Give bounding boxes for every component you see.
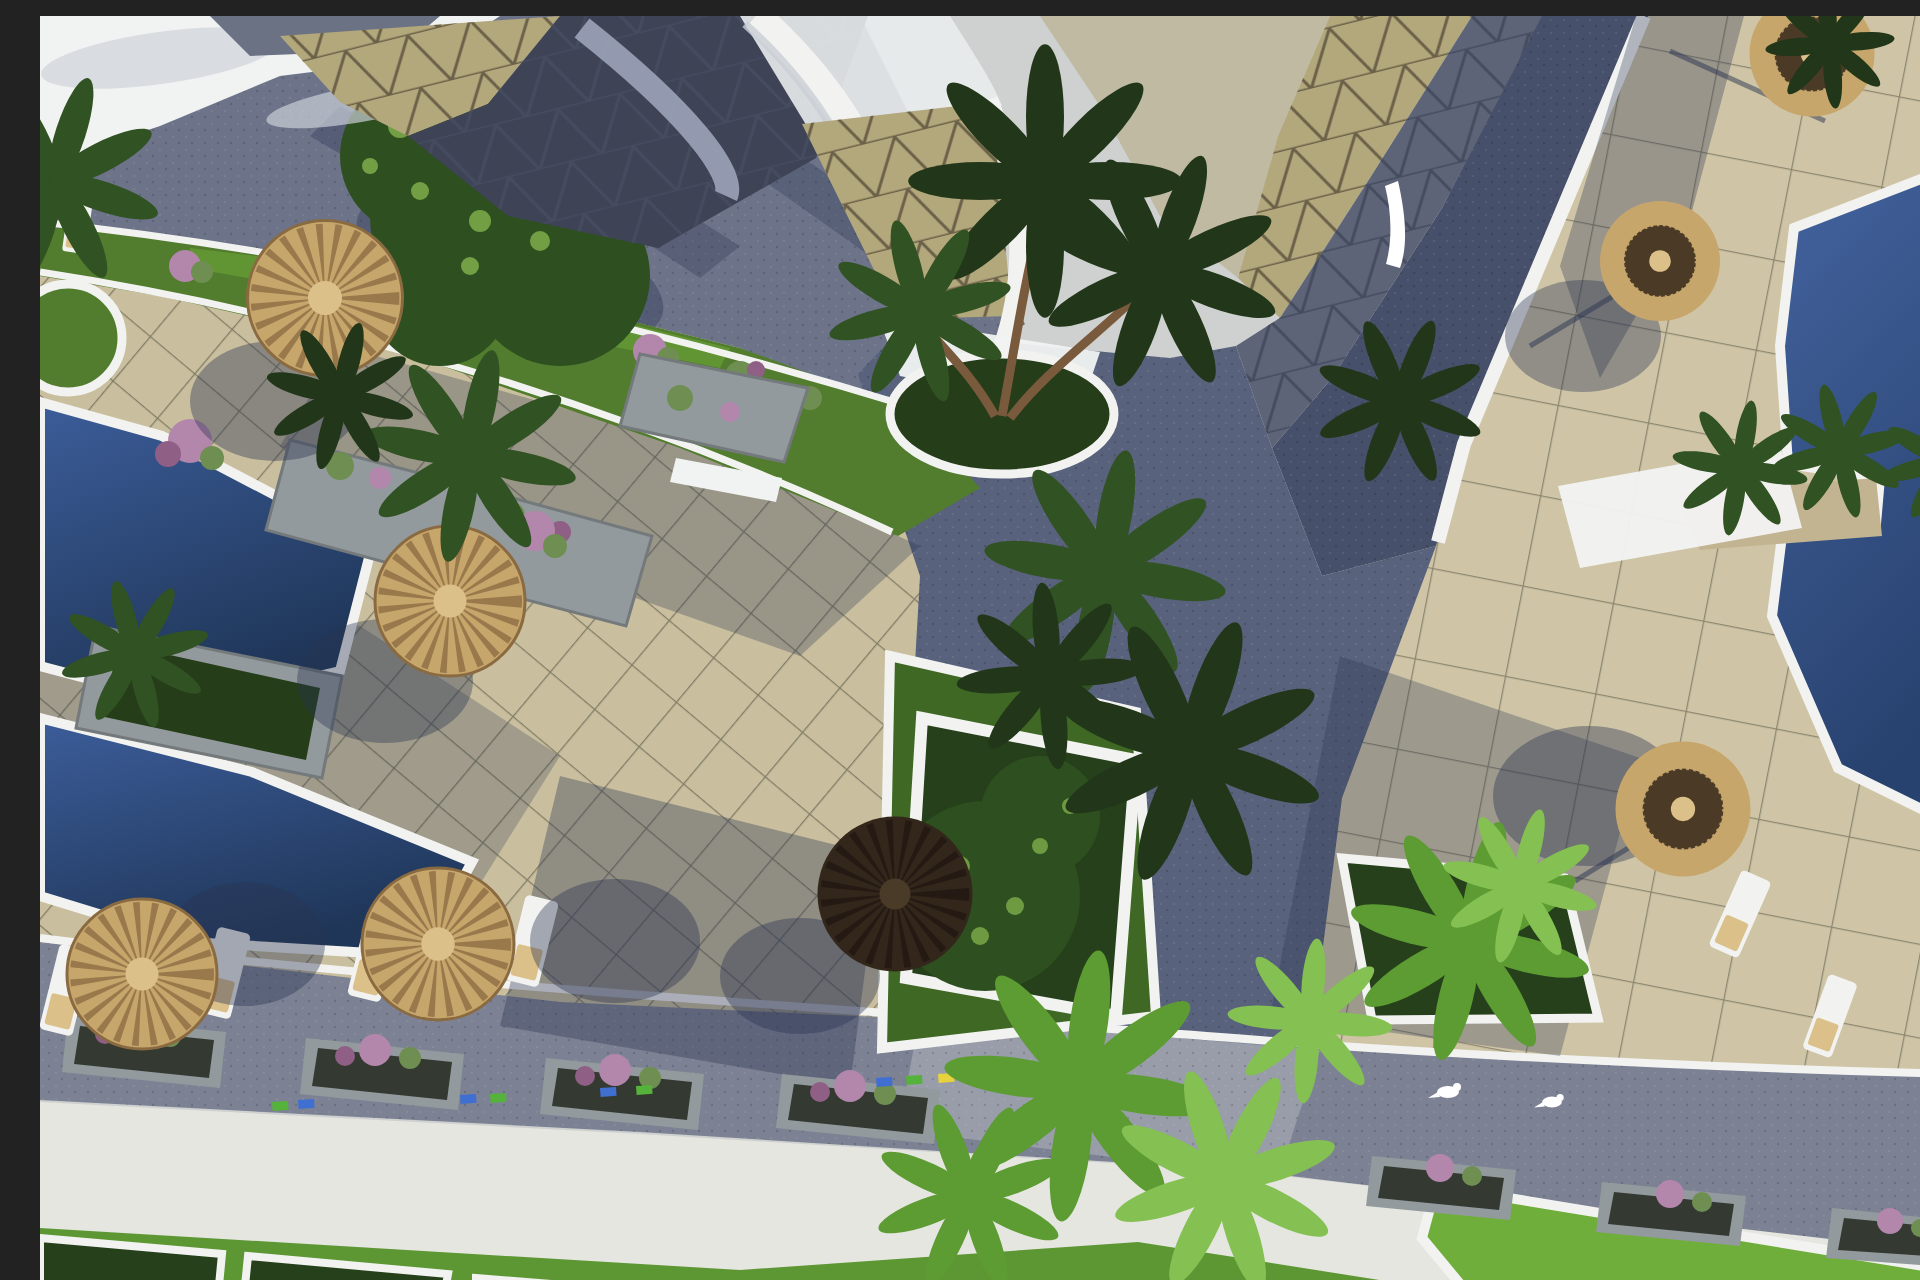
parasol-dark (818, 817, 973, 972)
aerial-resort-render (40, 16, 1920, 1280)
render-canvas (40, 16, 1920, 1280)
parasol-3 (67, 899, 217, 1049)
circular-grass-planter (40, 284, 122, 392)
parasol-4 (362, 868, 514, 1020)
parasol-5 (1600, 201, 1720, 321)
parasol-7 (1616, 742, 1751, 877)
